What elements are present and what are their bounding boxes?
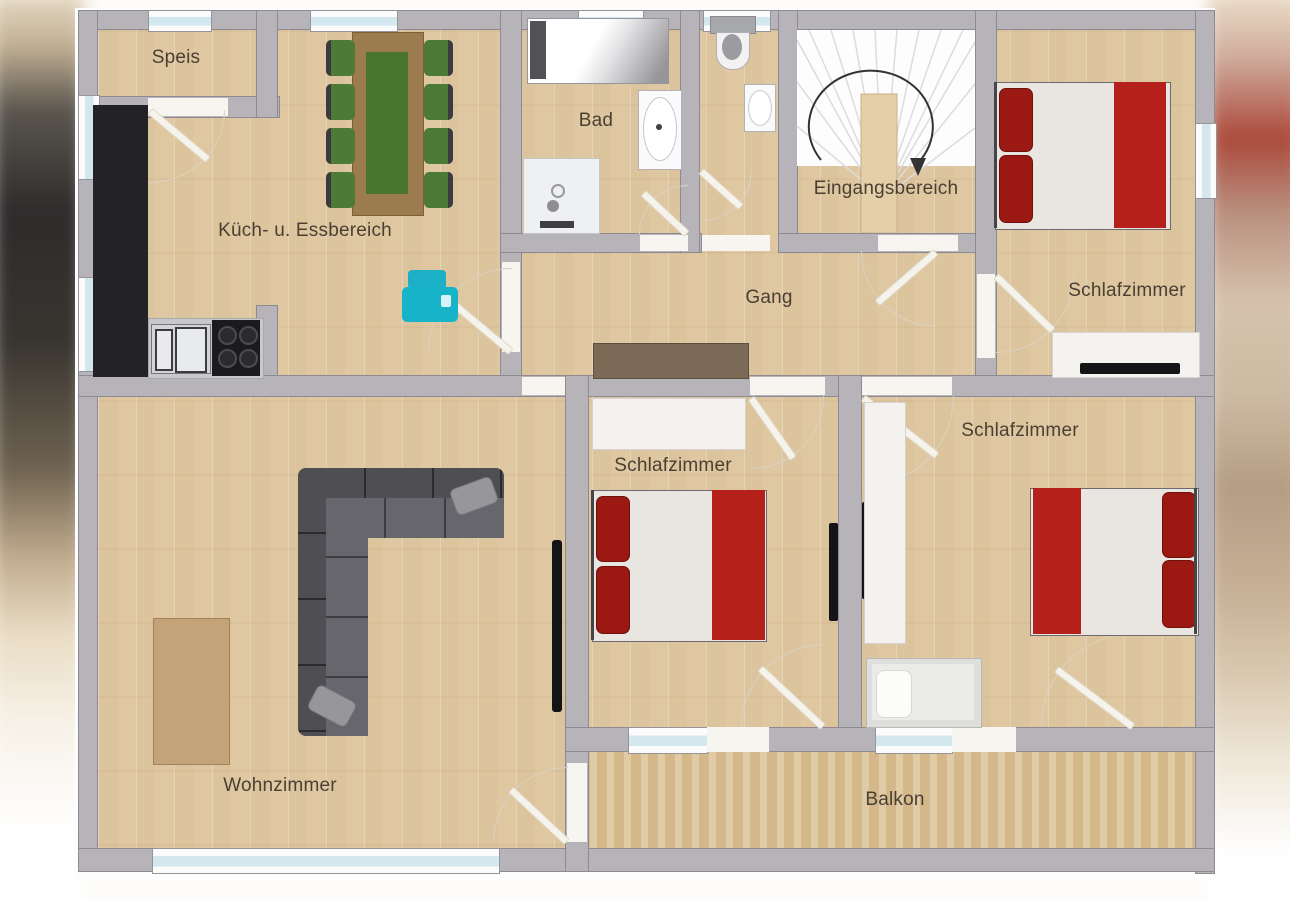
blurred-right-edge [1208, 0, 1290, 900]
bed-pillow [999, 155, 1033, 223]
bed-blanket [712, 490, 765, 640]
room-label-gang: Gang [745, 287, 792, 309]
window-living-south [152, 848, 500, 874]
dining-chair [326, 40, 355, 76]
table-runner [366, 52, 408, 194]
room-label-wohnzimmer: Wohnzimmer [223, 775, 337, 797]
blurred-left-edge [0, 0, 84, 900]
bed-pillow [876, 670, 912, 718]
window-kitchen [310, 10, 398, 32]
shower-drain [551, 184, 565, 198]
headboard [1194, 488, 1197, 634]
bathtub-end [530, 21, 546, 79]
door-opening-entrance [878, 235, 958, 251]
dining-chair [424, 172, 453, 208]
bed-pillow [1162, 492, 1196, 558]
printer-slot [441, 295, 451, 307]
balcony-door-east [952, 727, 1016, 752]
door-opening-bath [640, 235, 688, 251]
burner [239, 326, 258, 345]
door-opening-hall-living [522, 377, 565, 395]
room-label-speis: Speis [152, 47, 201, 69]
balcony-door-mid [707, 727, 769, 752]
window-speis [148, 10, 212, 32]
bed-pillow [596, 496, 630, 562]
bed-blanket [1033, 488, 1081, 634]
door-opening-living-balcony [567, 763, 587, 842]
room-label-kueche: Küch- u. Essbereich [218, 220, 392, 242]
shower-fixture [547, 200, 559, 212]
headboard [591, 490, 594, 640]
dining-chair [326, 172, 355, 208]
sink-basin-large [175, 327, 207, 373]
bed-pillow [1162, 560, 1196, 628]
dining-chair [424, 84, 453, 120]
staircase [797, 30, 975, 233]
wardrobe [592, 398, 746, 450]
window-bedroom-balcony-1 [628, 727, 708, 754]
rug [153, 618, 230, 765]
tv [829, 523, 838, 621]
door-opening-bedroom-mid [750, 377, 825, 395]
dining-chair [424, 128, 453, 164]
window-bedroom-east [1195, 123, 1217, 199]
wall-bedroom-divider [838, 375, 862, 752]
window-bedroom-balcony-2 [875, 727, 953, 754]
bed-pillow [596, 566, 630, 634]
burner [218, 326, 237, 345]
bathtub [527, 18, 669, 84]
wardrobe [864, 402, 906, 644]
sink-basin-small [155, 329, 173, 371]
door-opening-wc [702, 235, 770, 251]
burner [218, 349, 237, 368]
dining-chair [326, 128, 355, 164]
wc-basin-bowl [748, 90, 772, 126]
tv [552, 540, 562, 712]
room-label-eingangsbereich: Eingangsbereich [814, 178, 959, 200]
bed-pillow [999, 88, 1033, 152]
room-label-schlafzimmer-ost: Schlafzimmer [961, 420, 1078, 442]
room-label-schlafzimmer-nordost: Schlafzimmer [1068, 280, 1185, 302]
toilet-bowl [722, 34, 742, 60]
room-label-schlafzimmer-mitte: Schlafzimmer [614, 455, 731, 477]
sideboard [593, 343, 749, 379]
room-label-balkon: Balkon [865, 789, 924, 811]
dining-chair [424, 40, 453, 76]
room-label-bad: Bad [579, 110, 613, 132]
door-opening-bedroom-east [862, 377, 952, 395]
door-opening-bedroom-ne [977, 274, 995, 358]
tv [1080, 363, 1180, 374]
headboard [994, 82, 997, 228]
floor-plan-screenshot: Speis Küch- u. Essbereich Bad Eingangsbe… [0, 0, 1290, 900]
bed-blanket [1114, 82, 1166, 228]
dining-chair [326, 84, 355, 120]
burner [239, 349, 258, 368]
kitchen-counter [93, 105, 148, 377]
faucet [656, 124, 662, 130]
wall-speis-east [256, 10, 278, 118]
shower-rail [540, 221, 574, 228]
wall-wc-east [778, 10, 798, 253]
